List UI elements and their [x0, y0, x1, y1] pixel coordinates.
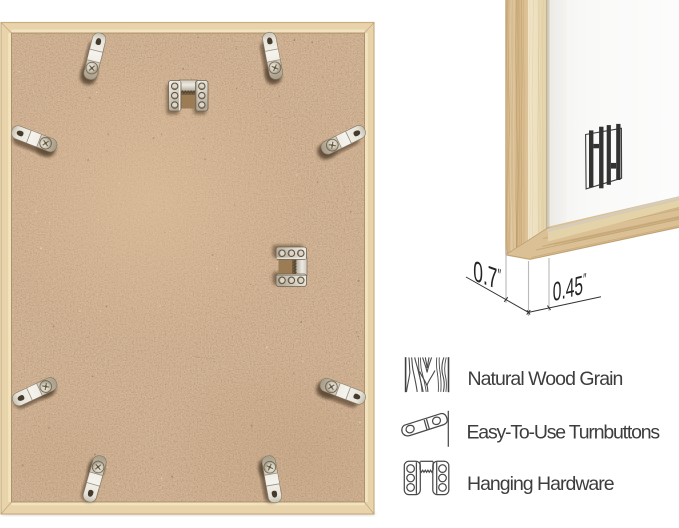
svg-text:Easy-To-Use Turnbuttons: Easy-To-Use Turnbuttons — [467, 422, 661, 444]
svg-text:Natural Wood Grain: Natural Wood Grain — [468, 368, 623, 390]
svg-text:Hanging Hardware: Hanging Hardware — [467, 473, 614, 495]
